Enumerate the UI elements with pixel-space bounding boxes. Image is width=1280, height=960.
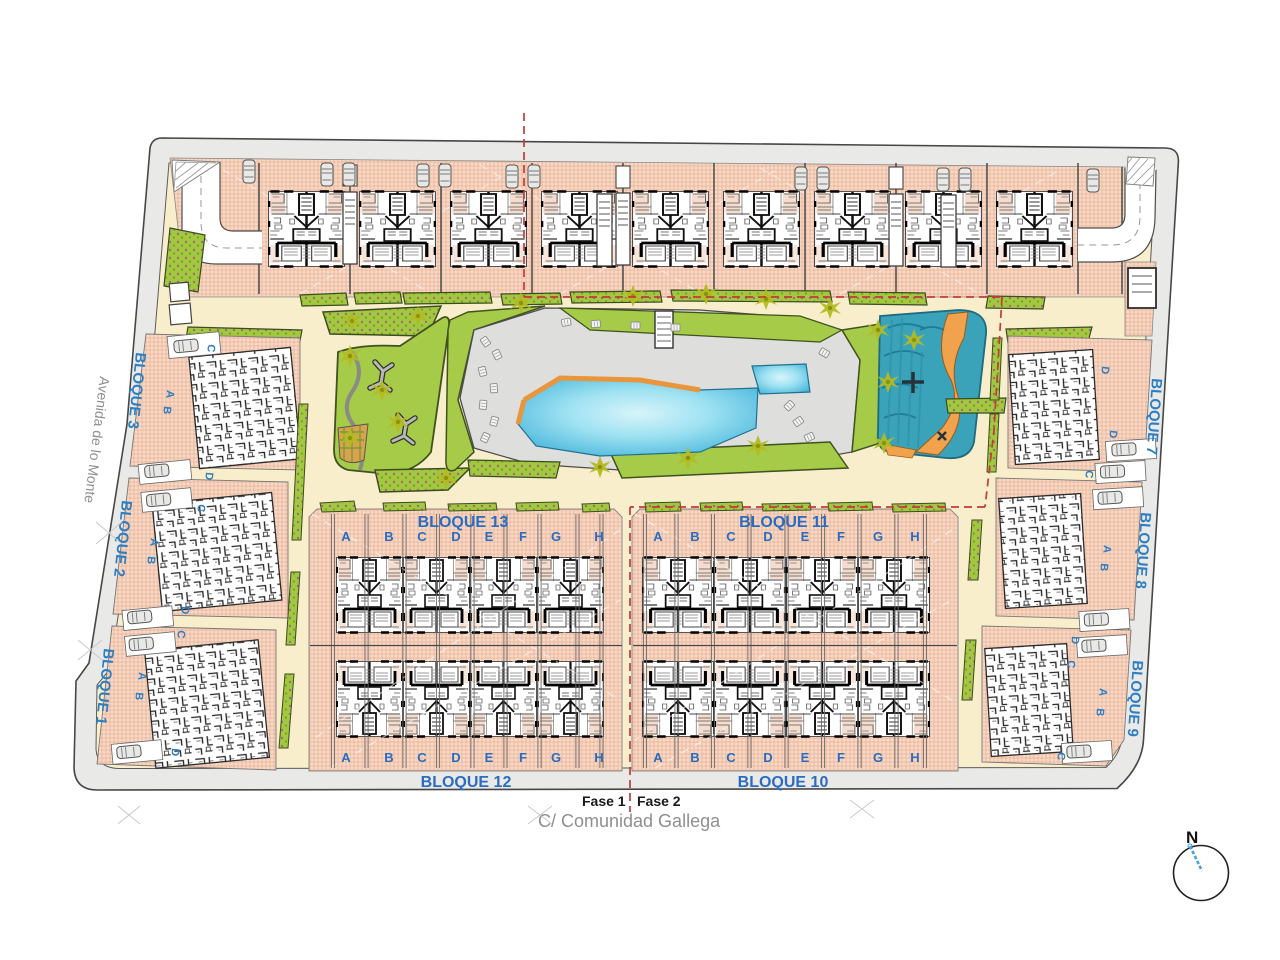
svg-text:F: F (837, 529, 845, 544)
svg-text:D: D (1098, 366, 1111, 375)
svg-text:B: B (690, 750, 699, 765)
svg-text:C: C (174, 630, 187, 639)
svg-text:F: F (519, 529, 527, 544)
svg-text:C: C (1054, 752, 1067, 761)
svg-text:C: C (726, 529, 736, 544)
svg-text:G: G (873, 750, 883, 765)
svg-text:E: E (485, 750, 494, 765)
svg-text:BLOQUE 12: BLOQUE 12 (421, 774, 512, 791)
svg-text:BLOQUE 13: BLOQUE 13 (418, 514, 509, 531)
svg-text:Fase 2: Fase 2 (637, 793, 681, 809)
svg-text:D: D (168, 748, 181, 757)
svg-text:D: D (451, 529, 460, 544)
svg-text:A: A (1100, 545, 1113, 554)
svg-text:D: D (451, 750, 460, 765)
svg-text:E: E (801, 750, 810, 765)
svg-text:D: D (763, 529, 772, 544)
svg-text:E: E (485, 529, 494, 544)
svg-text:H: H (594, 750, 603, 765)
svg-text:E: E (801, 529, 810, 544)
svg-text:B: B (132, 692, 145, 701)
svg-text:H: H (910, 529, 919, 544)
svg-text:B: B (160, 406, 173, 415)
svg-text:A: A (341, 529, 351, 544)
svg-text:B: B (690, 529, 699, 544)
svg-text:B: B (384, 529, 393, 544)
svg-text:G: G (551, 529, 561, 544)
svg-text:B: B (1097, 563, 1110, 572)
svg-text:B: B (144, 556, 157, 565)
svg-text:C: C (417, 750, 427, 765)
svg-text:H: H (910, 750, 919, 765)
svg-text:F: F (837, 750, 845, 765)
svg-text:C: C (204, 344, 217, 353)
svg-text:D: D (202, 472, 215, 481)
svg-text:C: C (726, 750, 736, 765)
svg-text:C: C (417, 529, 427, 544)
svg-text:D: D (178, 606, 191, 615)
svg-text:Fase 1: Fase 1 (582, 793, 626, 809)
svg-text:A: A (653, 750, 663, 765)
svg-text:D: D (1068, 636, 1081, 645)
svg-text:G: G (873, 529, 883, 544)
svg-text:BLOQUE 10: BLOQUE 10 (738, 774, 829, 791)
svg-text:B: B (1093, 708, 1106, 717)
svg-text:C: C (194, 504, 207, 513)
svg-text:N: N (1186, 828, 1198, 847)
svg-text:A: A (341, 750, 351, 765)
svg-text:C: C (1064, 660, 1077, 669)
svg-text:D: D (1106, 430, 1119, 439)
svg-text:BLOQUE 11: BLOQUE 11 (739, 514, 829, 531)
svg-text:A: A (163, 390, 176, 399)
svg-text:A: A (147, 538, 160, 547)
svg-text:F: F (519, 750, 527, 765)
svg-text:D: D (763, 750, 772, 765)
svg-text:C: C (1082, 470, 1095, 479)
svg-text:A: A (653, 529, 663, 544)
svg-text:H: H (594, 529, 603, 544)
svg-text:C/ Comunidad Gallega: C/ Comunidad Gallega (538, 811, 721, 831)
svg-text:A: A (1096, 688, 1109, 697)
svg-text:G: G (551, 750, 561, 765)
svg-text:A: A (135, 672, 148, 681)
svg-text:B: B (384, 750, 393, 765)
